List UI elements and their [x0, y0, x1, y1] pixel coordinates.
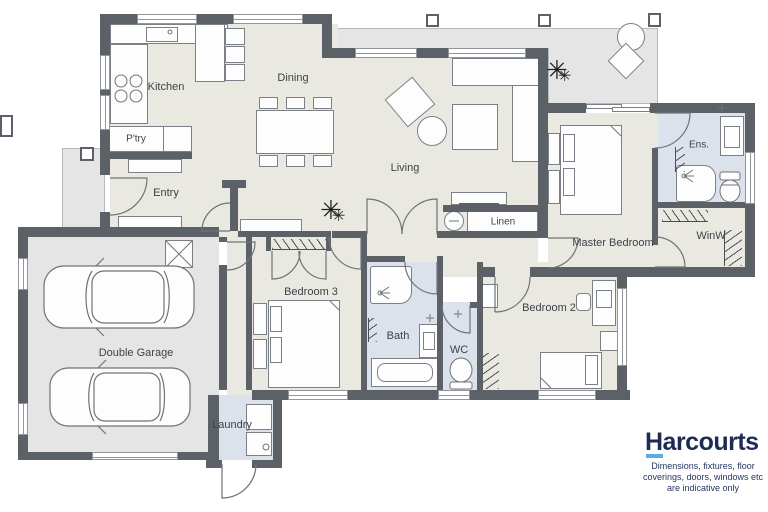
brand-logo: Harcourts — [645, 428, 759, 457]
room-label-entry: Entry — [153, 187, 179, 199]
door-swing — [227, 242, 255, 270]
room-label-dining: Dining — [277, 72, 308, 84]
brand-underline — [646, 454, 663, 458]
brand-disclaimer-line: are indicative only — [618, 483, 768, 494]
room-label-winw: WinW — [696, 230, 725, 242]
room-label-master-bedroom: Master Bedroom — [572, 237, 653, 249]
tap-icon — [718, 104, 726, 112]
door-swing — [367, 199, 402, 234]
door-swing — [299, 251, 326, 279]
washer-dial — [263, 444, 269, 450]
door-swing — [329, 237, 361, 269]
car-icon — [44, 258, 194, 336]
toilet-icon — [450, 358, 472, 389]
door-swing — [655, 237, 685, 267]
room-label-kitchen: Kitchen — [148, 81, 185, 93]
tap-icon — [454, 310, 462, 318]
room-label-ensuite: Ens. — [689, 140, 709, 151]
car-icon — [50, 360, 190, 434]
bed-fold — [611, 126, 621, 136]
tap-icon — [426, 314, 434, 322]
skylight-cross — [166, 241, 192, 267]
door-swing — [110, 178, 147, 215]
brand-disclaimer-line: coverings, doors, windows etc — [618, 472, 768, 483]
room-label-pantry: P'try — [126, 134, 146, 145]
room-label-bedroom2: Bedroom 2 — [522, 302, 576, 314]
room-label-bedroom3: Bedroom 3 — [284, 286, 338, 298]
door-swing — [272, 251, 300, 279]
stove-icon — [115, 75, 127, 87]
door-swing — [402, 199, 437, 234]
door-swing — [222, 464, 256, 498]
door-swing — [655, 113, 690, 148]
shower-icon — [378, 287, 390, 299]
sink-drain — [168, 30, 172, 34]
room-label-living: Living — [391, 162, 420, 174]
room-label-bath: Bath — [387, 330, 410, 342]
stove-icon — [130, 75, 142, 87]
shower-icon — [682, 170, 694, 182]
cars — [44, 258, 194, 434]
room-label-laundry: Laundry — [212, 419, 252, 431]
door-swing — [442, 305, 470, 333]
stove-icon — [115, 90, 127, 102]
room-label-double-garage: Double Garage — [99, 347, 174, 359]
brand-disclaimer-line: Dimensions, fixtures, floor — [618, 461, 768, 472]
stove-icon — [130, 90, 142, 102]
door-swing — [202, 203, 230, 231]
room-label-linen: Linen — [491, 217, 515, 228]
door-swing — [405, 262, 437, 294]
toilet-icon — [720, 172, 740, 202]
toilets — [450, 172, 740, 389]
floor-plan: ✳✳ ✳✳ — [0, 0, 768, 512]
bed-fold — [541, 378, 551, 388]
room-label-wc: WC — [450, 344, 468, 356]
bed-fold — [330, 301, 339, 310]
